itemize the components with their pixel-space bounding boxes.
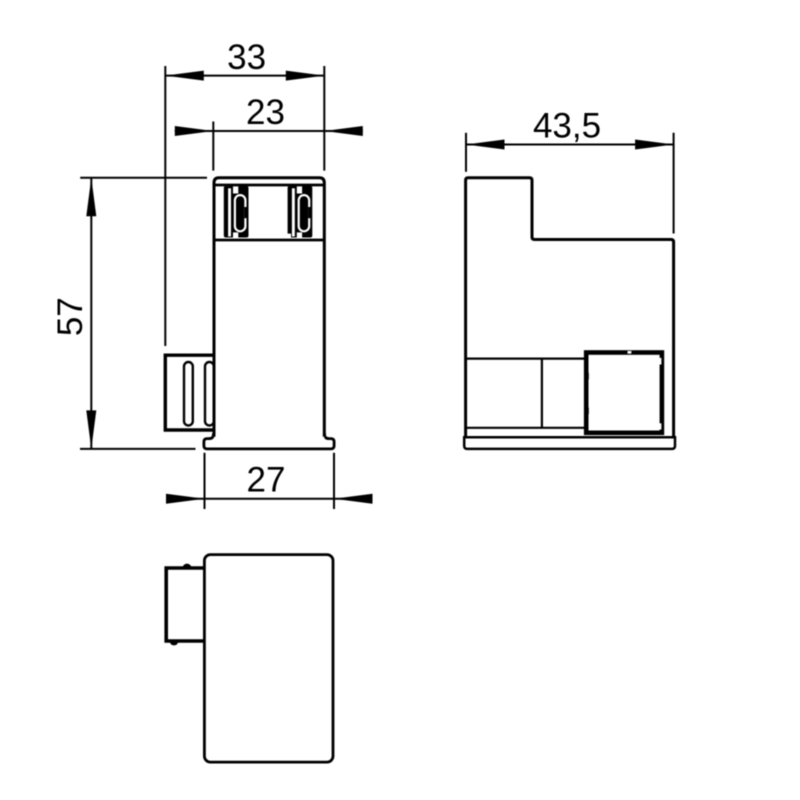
svg-text:27: 27 xyxy=(247,461,286,500)
svg-text:43,5: 43,5 xyxy=(533,107,601,146)
svg-text:23: 23 xyxy=(246,93,285,132)
svg-text:57: 57 xyxy=(51,297,90,336)
svg-text:33: 33 xyxy=(227,38,266,77)
